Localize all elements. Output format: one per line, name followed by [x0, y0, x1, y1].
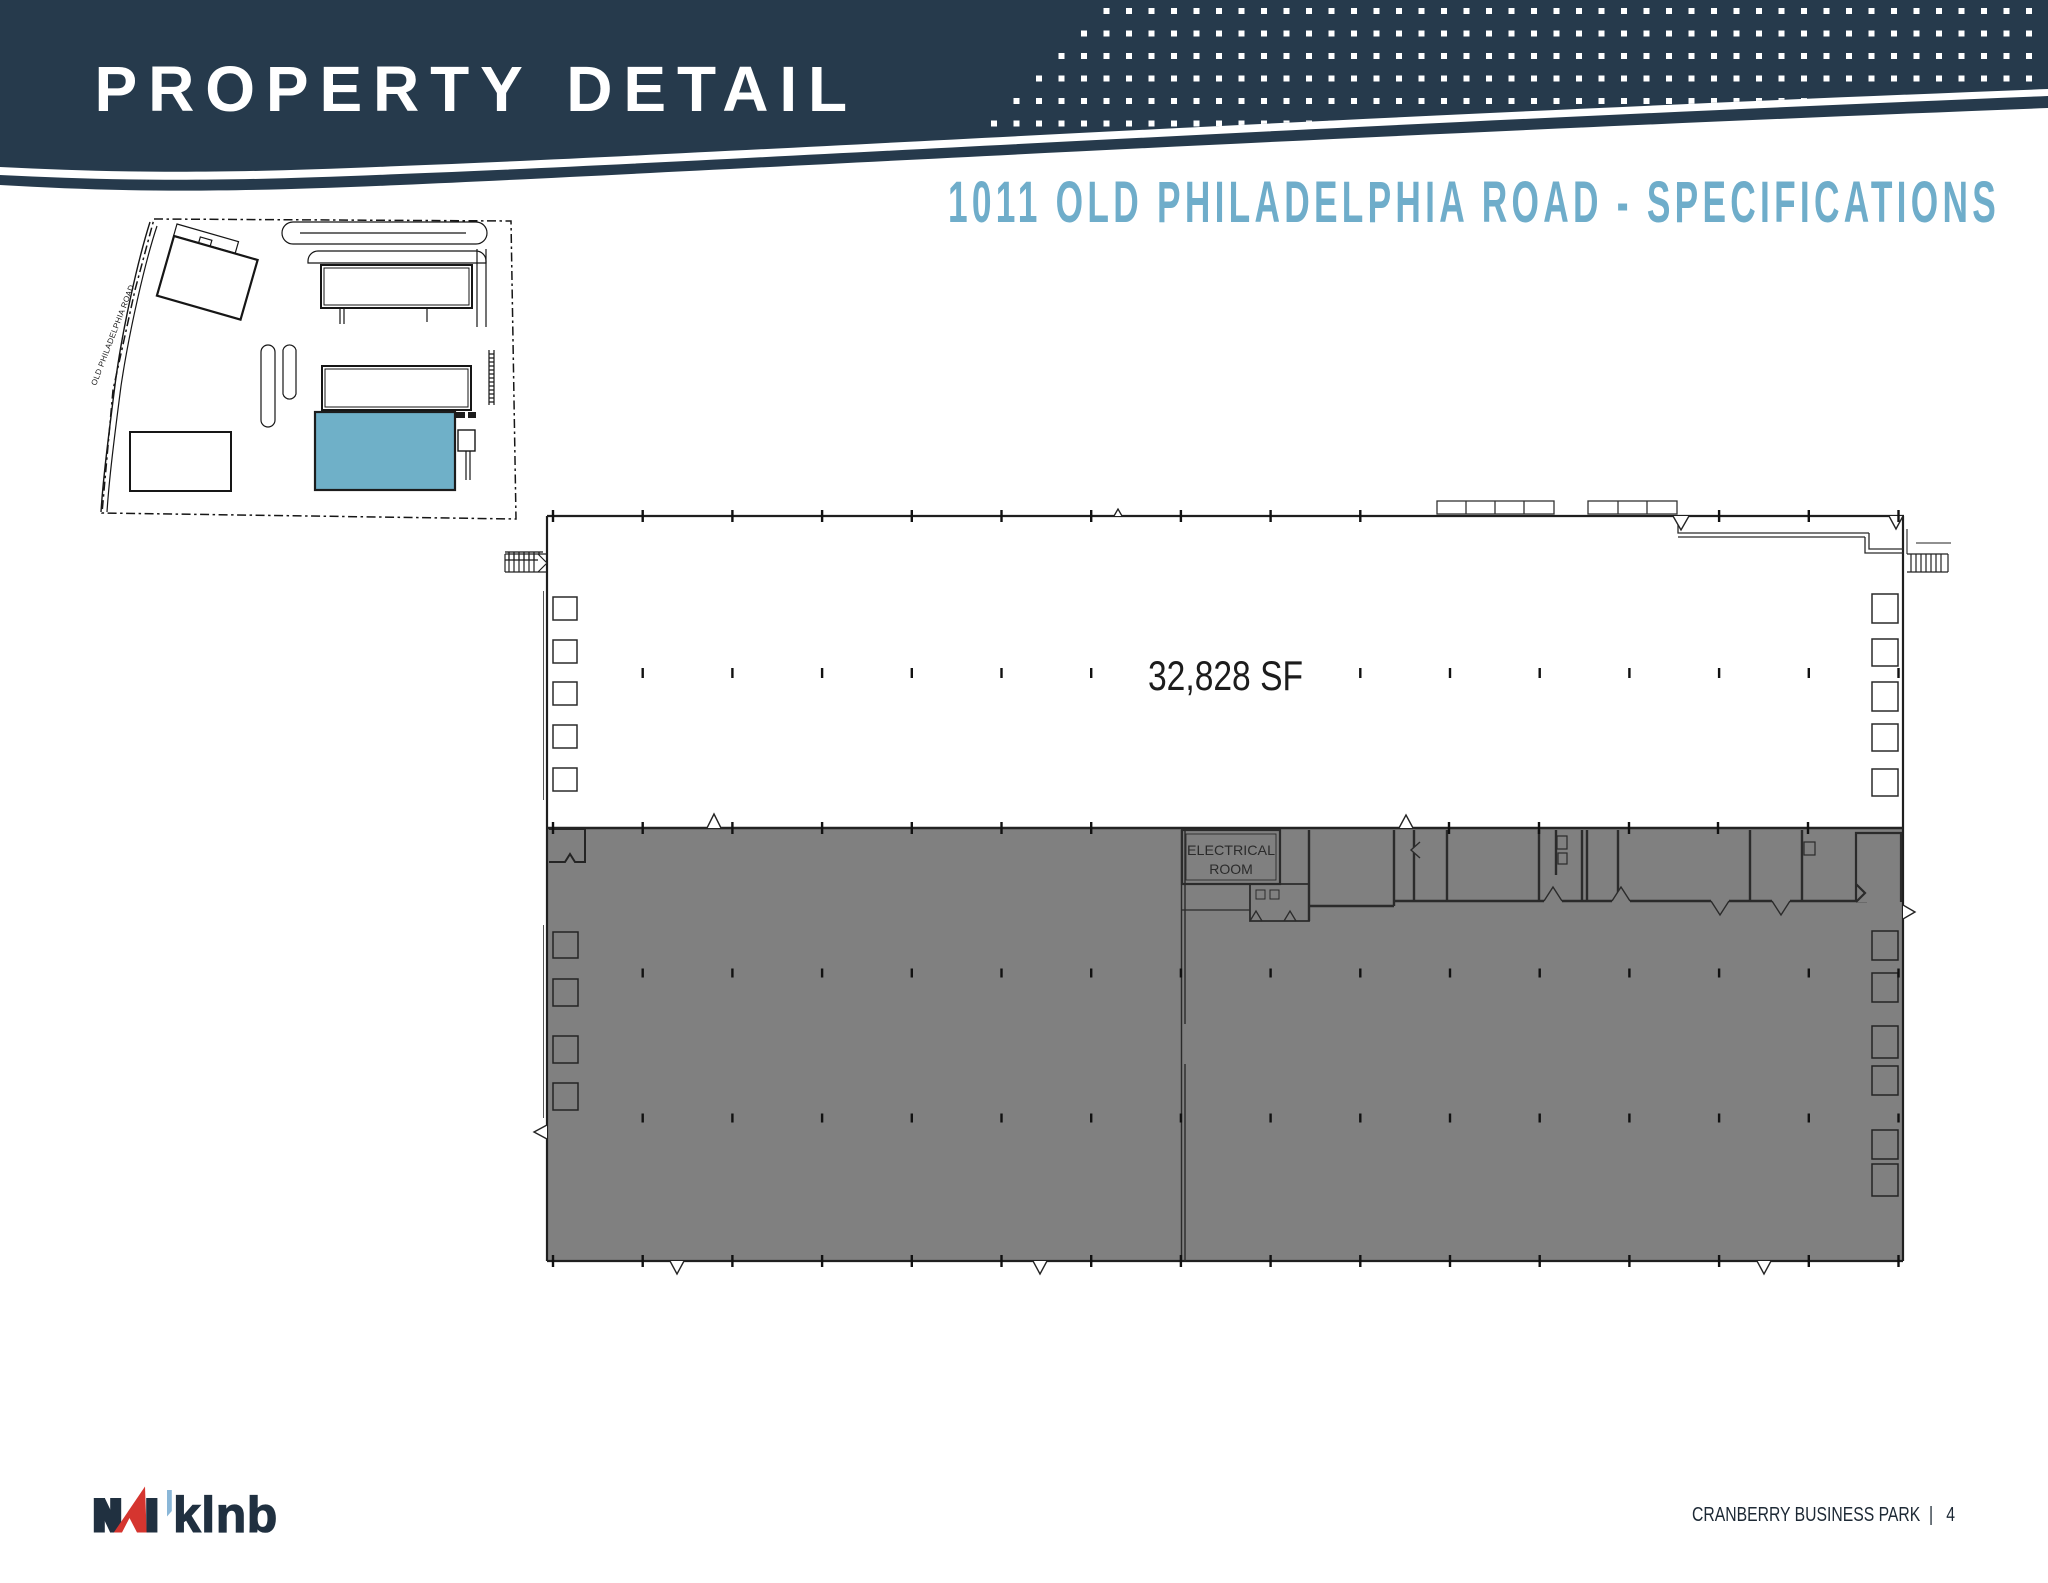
svg-text:OLD PHILADELPHIA ROAD: OLD PHILADELPHIA ROAD — [89, 283, 136, 386]
svg-text:1011 OLD PHILADELPHIA ROAD - S: 1011 OLD PHILADELPHIA ROAD - SPECIFICATI… — [948, 170, 2000, 235]
svg-text:klnb: klnb — [173, 1487, 278, 1543]
svg-text:CRANBERRY BUSINESS PARK | 4: CRANBERRY BUSINESS PARK | 4 — [1692, 1503, 1955, 1526]
